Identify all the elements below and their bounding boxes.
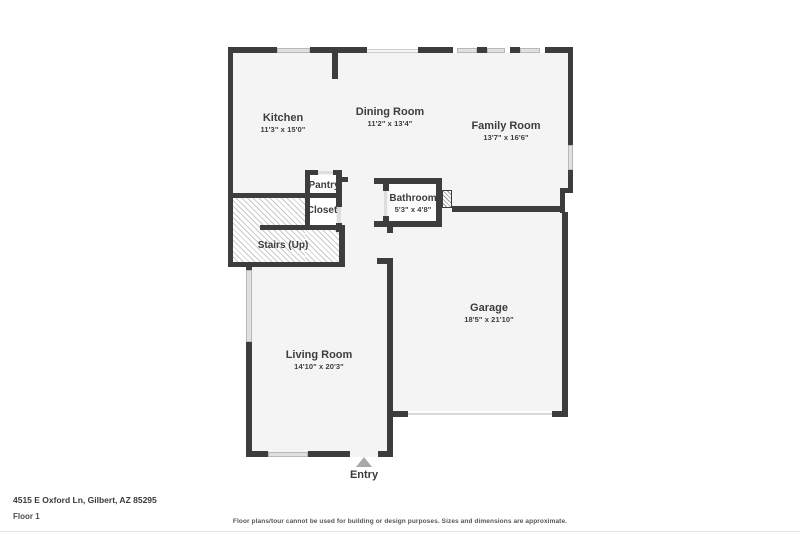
bathroom-fixture-hatch (442, 190, 452, 208)
wall (477, 47, 487, 53)
window (277, 48, 310, 53)
wall (568, 47, 573, 145)
room-label-family: Family Room 13'7" x 16'6" (471, 120, 540, 142)
disclaimer-text: Floor plans/tour cannot be used for buil… (0, 518, 800, 525)
room-label-closet: Closet (307, 205, 338, 217)
room-label-garage: Garage 18'5" x 21'10" (464, 302, 514, 324)
wall (308, 451, 350, 457)
wall (418, 47, 453, 53)
wall (436, 184, 442, 221)
wall (383, 184, 389, 191)
room-label-dining: Dining Room 11'2" x 13'4" (356, 106, 424, 128)
page-bottom-divider (0, 531, 800, 532)
window (268, 452, 308, 457)
wall (378, 451, 393, 457)
window (487, 48, 505, 53)
window (568, 145, 573, 170)
window (246, 270, 252, 342)
wall (305, 170, 310, 230)
wall (246, 451, 268, 457)
window (457, 48, 477, 53)
garage-door (408, 413, 552, 415)
wall (377, 258, 387, 264)
wall (387, 258, 393, 457)
wall (332, 53, 338, 79)
entry-arrow-icon (356, 457, 372, 467)
room-label-pantry: Pantry (308, 180, 339, 192)
wall (228, 47, 277, 53)
pantry-door (318, 171, 333, 174)
wall (374, 221, 442, 227)
exterior-notch (565, 193, 573, 214)
room-label-living: Living Room 14'10" x 20'3" (286, 349, 353, 371)
wall (310, 47, 367, 53)
floor-plan: Kitchen 11'3" x 15'0" Dining Room 11'2" … (0, 0, 800, 533)
room-label-bathroom: Bathroom 5'3" x 4'8" (389, 193, 436, 214)
wall (387, 225, 393, 233)
wall (228, 47, 233, 267)
wall (341, 177, 348, 182)
room-label-kitchen: Kitchen 11'3" x 15'0" (261, 112, 306, 134)
wall (260, 225, 345, 230)
wall (562, 212, 568, 417)
wall (552, 411, 568, 417)
window (520, 48, 540, 53)
wall (305, 170, 318, 175)
wall (452, 206, 562, 212)
bathroom-door (384, 191, 387, 216)
wall (228, 193, 310, 198)
wall (246, 342, 252, 457)
wall (510, 47, 520, 53)
stairs-hatch (233, 198, 305, 262)
stairs-hatch-lower (305, 230, 343, 262)
entry-label: Entry (350, 469, 378, 482)
room-label-stairs: Stairs (Up) (258, 240, 309, 252)
wall (246, 262, 252, 270)
address-label: 4515 E Oxford Ln, Gilbert, AZ 85295 (13, 495, 157, 505)
window (367, 49, 418, 53)
